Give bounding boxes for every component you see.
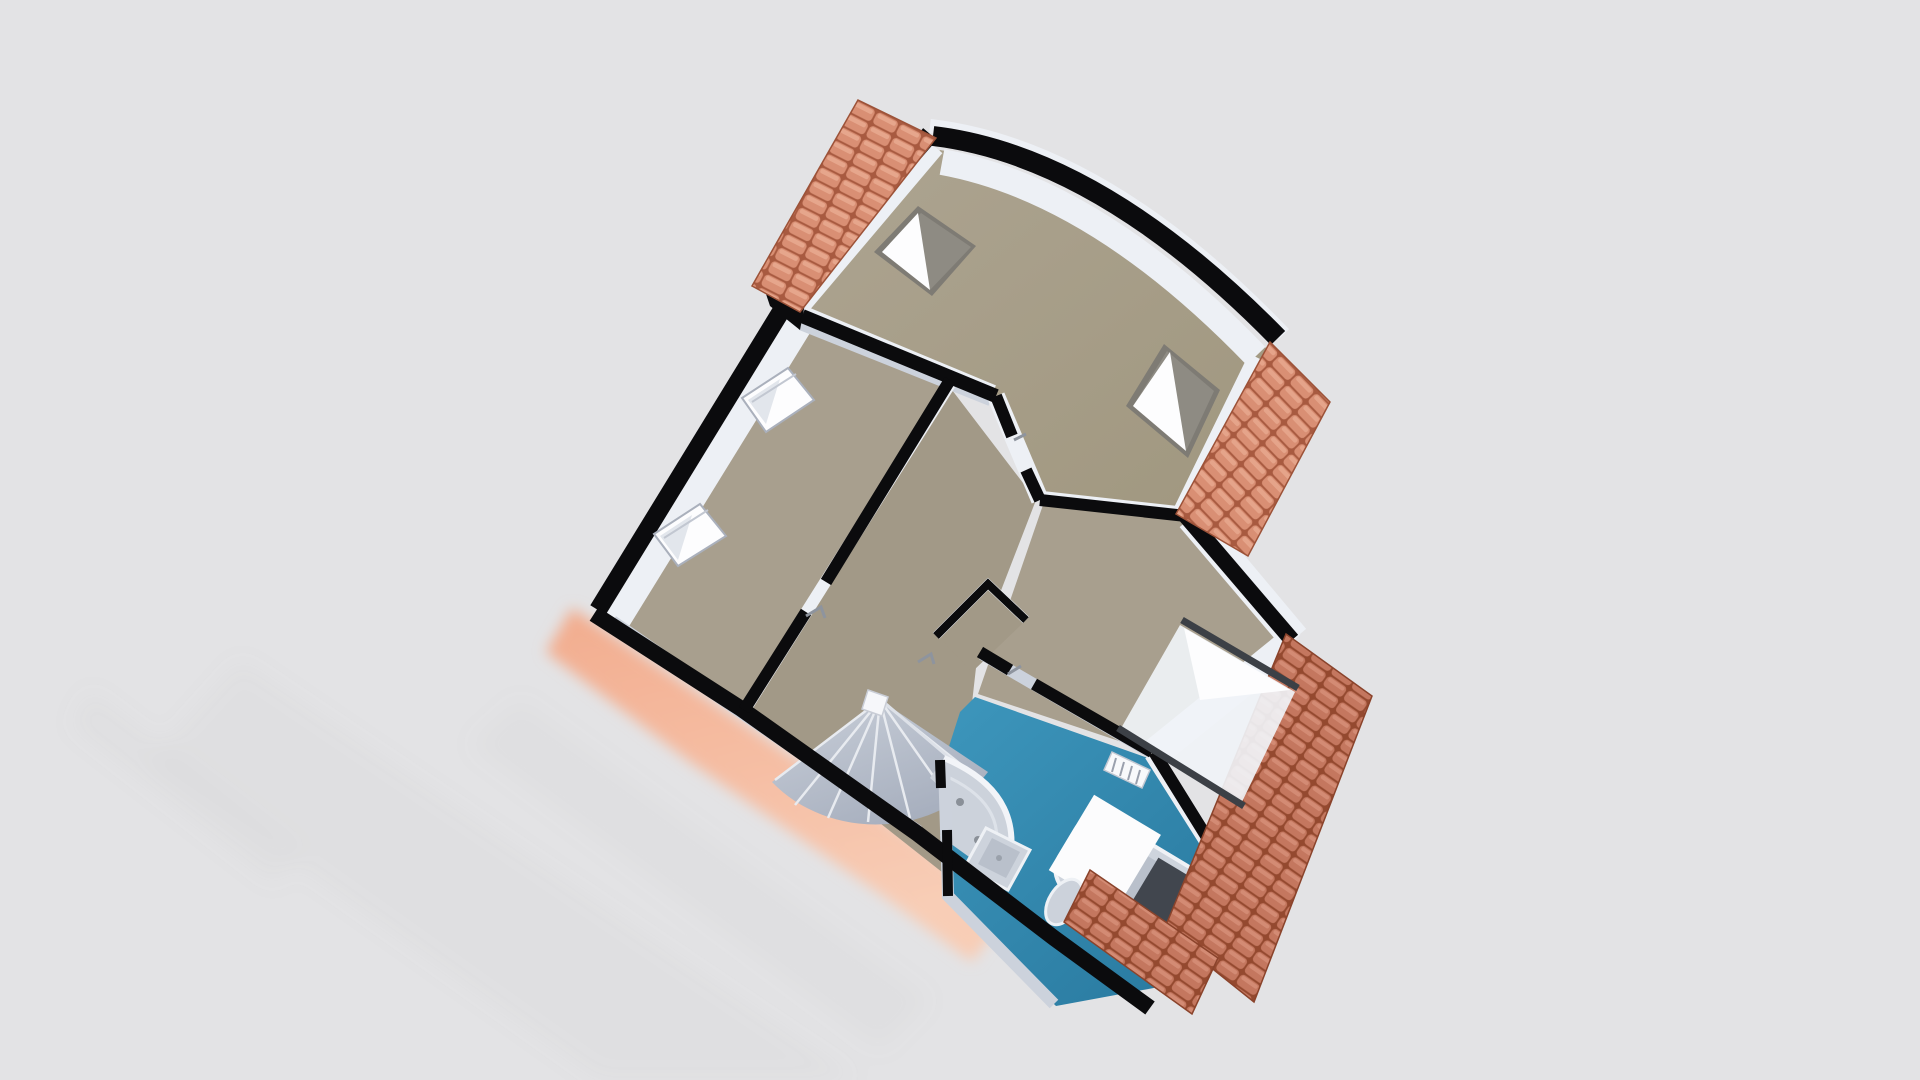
- floor-plan-canvas: [0, 0, 1920, 1080]
- floor-plan-render: [0, 0, 1920, 1080]
- shower-drain: [956, 798, 964, 806]
